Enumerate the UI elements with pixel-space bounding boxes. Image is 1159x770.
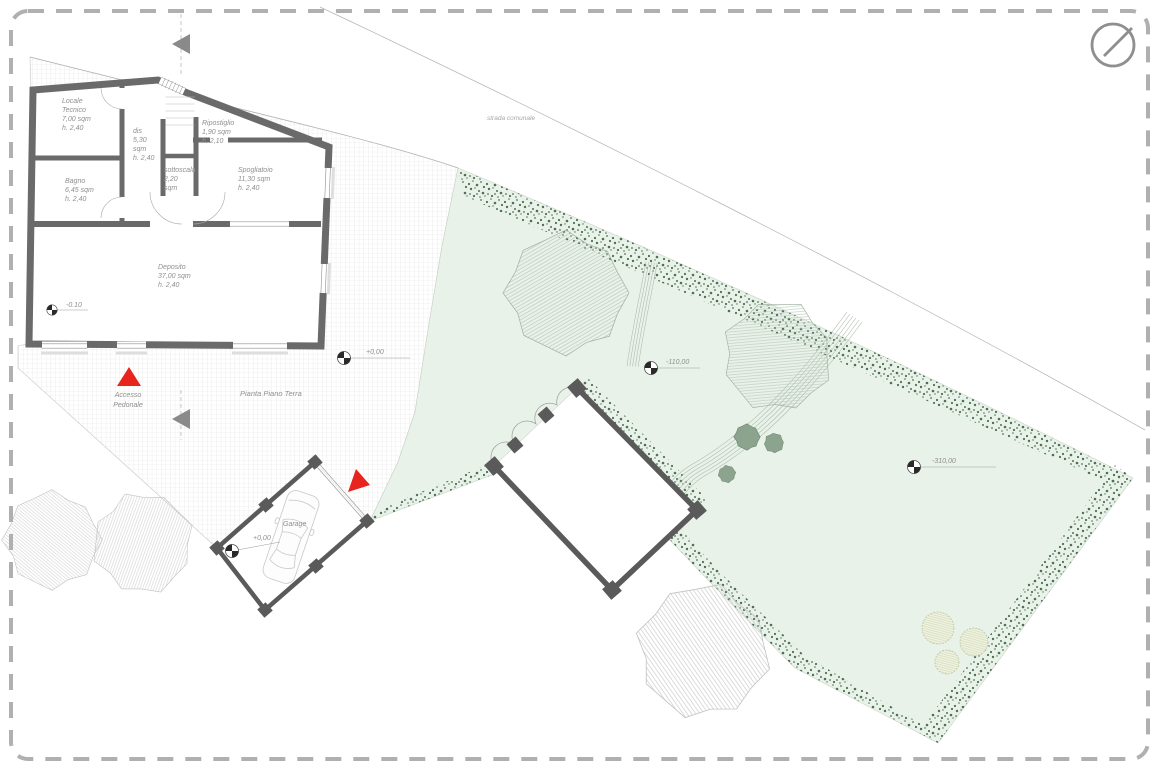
room-label: Bagno [65, 178, 85, 185]
level-label: -0.10 [66, 302, 82, 309]
room-label: Spogliatoio [238, 167, 273, 174]
room-label: h. 2,40 [158, 282, 180, 289]
room-label: sqm [164, 185, 177, 192]
room-label: sottoscala [164, 167, 196, 174]
main-building: Locale Tecnico 7,00 sqm h. 2,40 dis 5,30… [29, 77, 334, 353]
level-label: -310,00 [932, 458, 956, 465]
level-label: -110,00 [666, 359, 689, 366]
room-label: h. 2,40 [238, 185, 260, 192]
room-label: 6,45 sqm [65, 187, 94, 194]
room-label: h. 2,40 [62, 125, 84, 132]
room-label: h. 2,10 [202, 138, 224, 145]
room-label: sqm [133, 146, 146, 153]
tree [2, 490, 103, 591]
shrub [935, 650, 959, 674]
room-label: 37,00 sqm [158, 273, 191, 280]
room-label: Ripostiglio [202, 120, 234, 127]
room-label: 7,00 sqm [62, 116, 91, 123]
garage-label: Garage [283, 521, 306, 528]
plan-title: Pianta Piano Terra [240, 389, 302, 398]
room-label: dis [133, 128, 142, 135]
room-label: h. 2,40 [133, 155, 155, 162]
room-label: 11,30 sqm [238, 176, 270, 183]
room-label: Tecnico [62, 107, 86, 114]
site-plan-page: strada comunale [0, 0, 1159, 770]
road-label: strada comunale [487, 115, 535, 122]
shrub [960, 628, 988, 656]
level-label: +0,00 [366, 349, 384, 356]
access-label: Pedonale [113, 402, 143, 409]
room-label: 5,30 [133, 137, 147, 144]
room-label: h. 2,40 [65, 196, 87, 203]
room-label: 1,90 sqm [202, 129, 231, 136]
room-label: 2,20 [163, 176, 178, 183]
compass-icon [1092, 24, 1134, 66]
room-label: Deposito [158, 264, 186, 271]
access-label: Accesso [114, 392, 142, 399]
site-plan-drawing: strada comunale [0, 0, 1159, 770]
level-label: +0,00 [253, 535, 271, 542]
shrub [922, 612, 954, 644]
room-label: Locale [62, 98, 83, 105]
